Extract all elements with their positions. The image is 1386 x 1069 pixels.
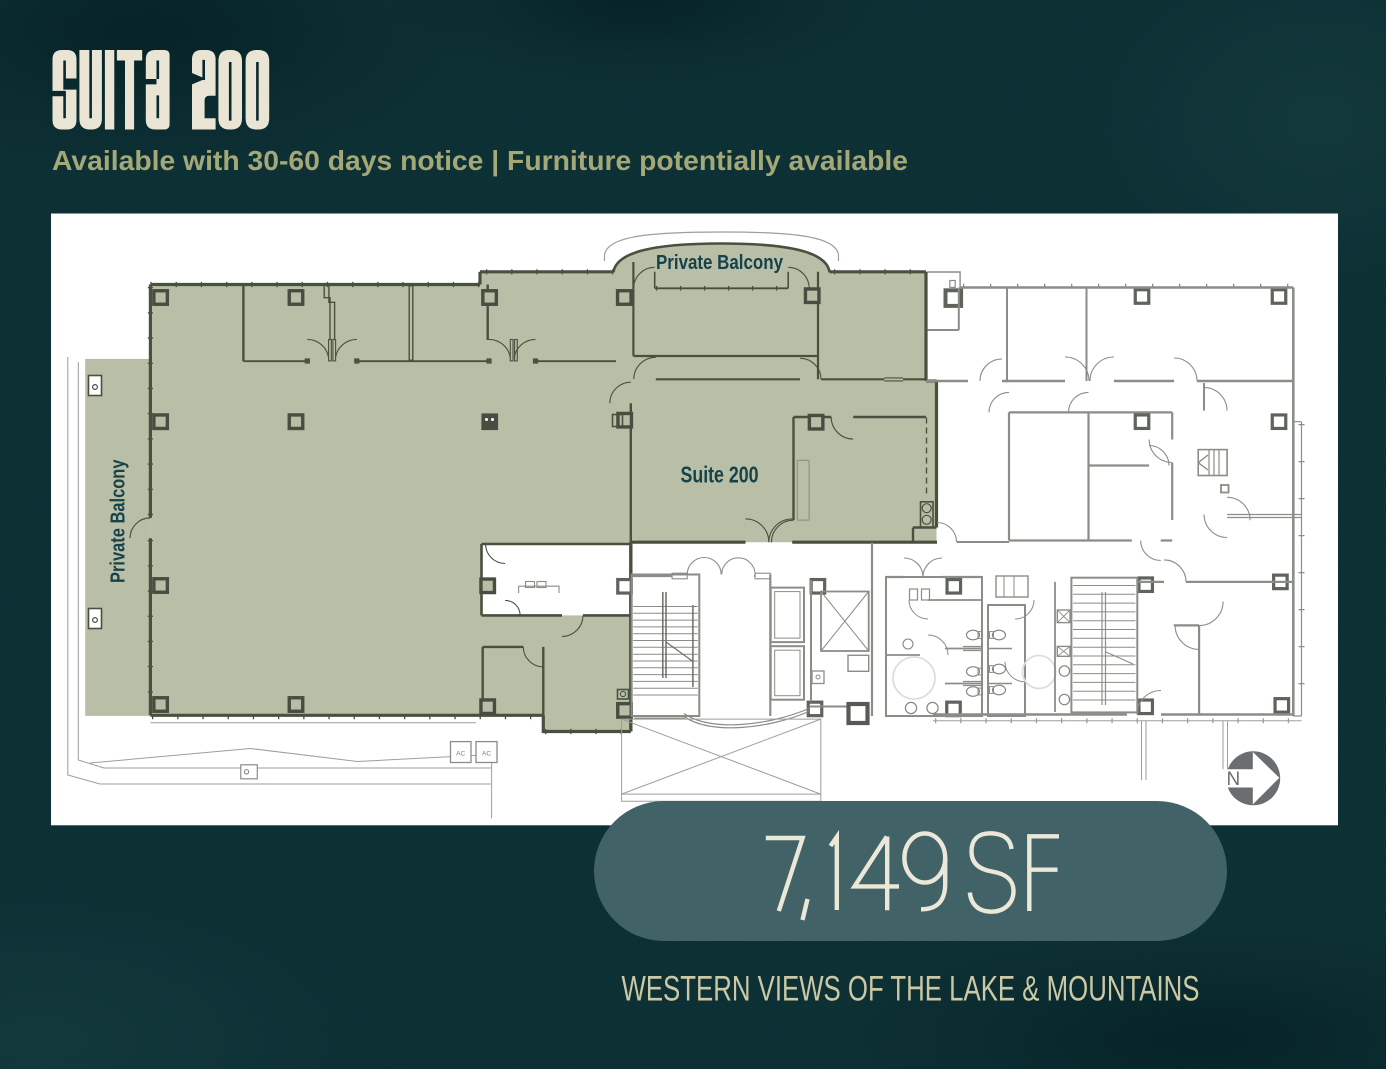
svg-text:Private Balcony: Private Balcony [656,251,783,274]
svg-text:Private Balcony: Private Balcony [107,459,130,583]
svg-text:Available with 30-60 days noti: Available with 30-60 days notice | Furni… [52,145,908,176]
svg-text:N: N [1227,769,1241,790]
svg-text:AC: AC [482,751,491,758]
svg-text:AC: AC [456,751,465,758]
svg-text:WESTERN VIEWS OF THE LAKE & MO: WESTERN VIEWS OF THE LAKE & MOUNTAINS [622,969,1200,1009]
svg-text:Suite 200: Suite 200 [681,462,759,488]
